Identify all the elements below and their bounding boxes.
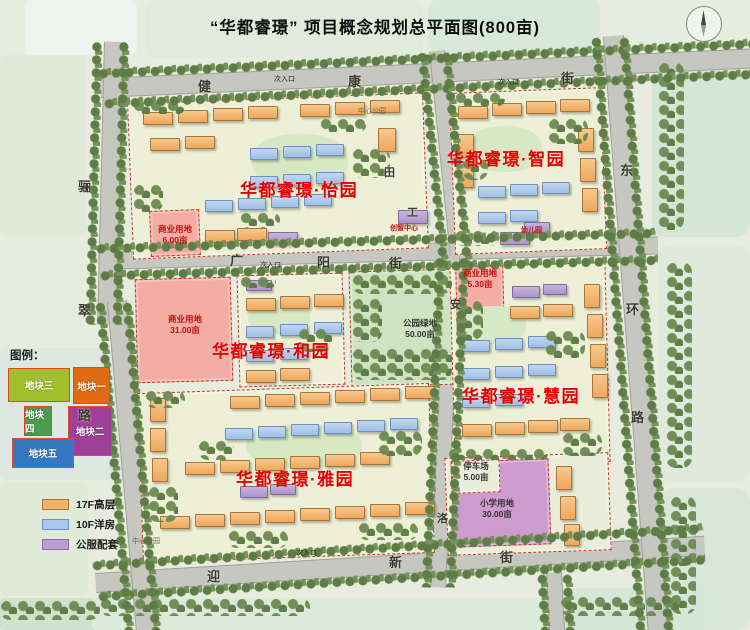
building-hi	[335, 390, 365, 403]
building-hi	[556, 466, 572, 490]
street-label-jie-top: 街	[561, 71, 574, 88]
building-hi	[592, 374, 608, 398]
building-hi	[510, 306, 540, 319]
site-plan-map: “华都睿璟” 项目概念规划总平面图(800亩) 图例： 健康街广阳街迎新街骊翠路…	[0, 0, 750, 630]
building-hi	[150, 428, 166, 452]
tree-grove	[545, 330, 585, 358]
building-pub	[512, 286, 540, 298]
compass-icon	[686, 6, 722, 42]
building-hi	[300, 392, 330, 405]
street-label-guang: 广	[230, 253, 243, 270]
park-label: 中心公园	[132, 537, 160, 546]
building-hi	[528, 420, 558, 433]
page-title: “华都睿璟” 项目概念规划总平面图(800亩)	[0, 14, 750, 38]
district-label-heyuan: 华都睿璟·和园	[212, 341, 330, 363]
building-hi	[248, 106, 278, 119]
street-label-li: 骊	[78, 179, 91, 196]
building-hi	[462, 424, 492, 437]
building-hi	[230, 396, 260, 409]
tree-grove	[133, 184, 163, 212]
building-hi	[526, 101, 556, 114]
entrance-label: 次入口	[274, 75, 295, 84]
street-label-yang: 阳	[317, 255, 330, 272]
tree-grove	[145, 390, 185, 408]
building-fl	[205, 200, 233, 212]
district-label-huiyuan: 华都睿璟·慧园	[462, 386, 580, 408]
building-hi	[370, 388, 400, 401]
tree-grove	[378, 430, 422, 456]
area-label-commercial-3: 商业用地 5.30亩	[455, 268, 505, 290]
street-label-jian: 健	[198, 79, 211, 96]
street-label-jie-mid: 街	[389, 256, 402, 273]
legend-type-swatch	[42, 519, 69, 530]
building-fl	[316, 144, 344, 156]
street-label-dong: 东	[620, 163, 633, 180]
building-hi	[543, 304, 573, 317]
building-hi	[280, 296, 310, 309]
building-fl	[291, 424, 319, 436]
tree-grove	[198, 440, 234, 460]
park-label: 中心公园	[358, 107, 386, 116]
area-label-school: 小学用地 30.00亩	[468, 498, 526, 520]
building-fl	[495, 366, 523, 378]
legend-type-swatch	[42, 499, 69, 510]
street-label-gong: 工	[407, 206, 418, 220]
building-hi	[587, 314, 603, 338]
tree-grove	[548, 118, 588, 144]
building-hi	[230, 512, 260, 525]
tree-grove	[448, 448, 548, 460]
building-fl	[225, 428, 253, 440]
building-fl	[283, 146, 311, 158]
building-hi	[185, 136, 215, 149]
tree-grove	[562, 432, 602, 456]
building-hi	[265, 510, 295, 523]
tree-grove	[228, 530, 288, 548]
building-hi	[300, 508, 330, 521]
building-hi	[150, 138, 180, 151]
building-hi	[314, 294, 344, 307]
legend-heading: 图例：	[10, 347, 45, 363]
legend-parcel: 地块一	[73, 367, 110, 404]
tree-grove	[455, 92, 505, 106]
building-fl	[390, 418, 418, 430]
building-hi	[325, 454, 355, 467]
entrance-label: 次入口	[260, 261, 281, 270]
facility-label-center: 创智中心	[390, 224, 418, 233]
entrance-label: 次入口	[498, 78, 519, 87]
building-hi	[560, 418, 590, 431]
street-label-an: 安	[450, 298, 461, 312]
building-fl	[250, 148, 278, 160]
building-hi	[458, 106, 488, 119]
area-label-park: 公园绿地 50.00亩	[392, 318, 448, 340]
building-hi	[590, 344, 606, 368]
building-fl	[510, 210, 538, 222]
tree-grove	[148, 486, 178, 522]
tree-row	[562, 574, 576, 630]
building-hi	[335, 506, 365, 519]
street-label-xin: 新	[389, 555, 402, 572]
building-hi	[560, 496, 576, 520]
building-hi	[290, 456, 320, 469]
street-label-kang: 康	[348, 74, 361, 91]
district-label-yayuan: 华都睿璟·雅园	[236, 469, 354, 491]
tree-grove	[240, 212, 280, 228]
legend-parcel: 地块四	[24, 406, 52, 436]
building-hi	[152, 458, 168, 482]
compass-needle-south	[701, 25, 706, 37]
building-hi	[185, 462, 215, 475]
tree-grove	[658, 62, 684, 230]
street-label-luo: 洛	[437, 512, 448, 526]
building-hi	[213, 108, 243, 121]
street-label-cui: 翠	[78, 303, 91, 320]
building-fl	[357, 420, 385, 432]
street-label-tian: 田	[384, 166, 395, 180]
tree-grove	[358, 522, 418, 540]
building-hi	[280, 368, 310, 381]
building-hi	[246, 298, 276, 311]
area-label-commercial-1: 商业用地 6.00亩	[150, 224, 200, 246]
legend-type-label: 10F洋房	[76, 517, 115, 532]
building-fl	[542, 182, 570, 194]
street-label-lu-west: 路	[78, 408, 91, 425]
street-label-huan: 环	[626, 302, 639, 319]
legend-parcel: 地块三	[8, 368, 70, 402]
street-label-jie-bottom: 街	[500, 550, 513, 567]
building-fl	[324, 422, 352, 434]
building-hi	[584, 284, 600, 308]
district-label-yiyuan: 华都睿璟·怡园	[240, 180, 358, 202]
tree-grove	[240, 276, 276, 288]
building-fl	[246, 326, 274, 338]
legend-parcel: 地块五	[12, 438, 74, 468]
building-fl	[510, 184, 538, 196]
area-label-parking: 停车场 5.00亩	[453, 461, 499, 483]
building-hi	[300, 104, 330, 117]
building-fl	[478, 186, 506, 198]
district-label-zhiyuan: 华都睿璟·智园	[447, 149, 565, 171]
facility-label-kindergarten: 幼儿园	[521, 226, 542, 235]
tree-grove	[666, 262, 692, 468]
building-hi	[265, 394, 295, 407]
entrance-label: 次入口	[296, 549, 317, 558]
compass-needle-north	[701, 10, 706, 25]
tree-grove	[0, 600, 100, 620]
building-hi	[246, 370, 276, 383]
area-label-commercial-2: 商业用地 31.00亩	[158, 314, 212, 336]
building-hi	[560, 99, 590, 112]
building-hi	[370, 504, 400, 517]
building-pub	[543, 284, 567, 295]
building-hi	[495, 422, 525, 435]
building-fl	[258, 426, 286, 438]
legend-type-label: 公服配套	[76, 537, 118, 552]
green-patch	[0, 55, 86, 237]
street-label-lu-east: 路	[631, 410, 644, 427]
building-hi	[580, 158, 596, 182]
legend-type-label: 17F高层	[76, 497, 115, 512]
tree-grove	[352, 298, 382, 342]
tree-grove	[320, 118, 366, 132]
legend-type-swatch	[42, 539, 69, 550]
green-patch	[0, 240, 80, 346]
street-label-ying: 迎	[207, 569, 220, 586]
building-fl	[462, 368, 490, 380]
building-hi	[582, 188, 598, 212]
building-hi	[195, 514, 225, 527]
building-fl	[528, 364, 556, 376]
building-fl	[495, 338, 523, 350]
building-fl	[478, 212, 506, 224]
